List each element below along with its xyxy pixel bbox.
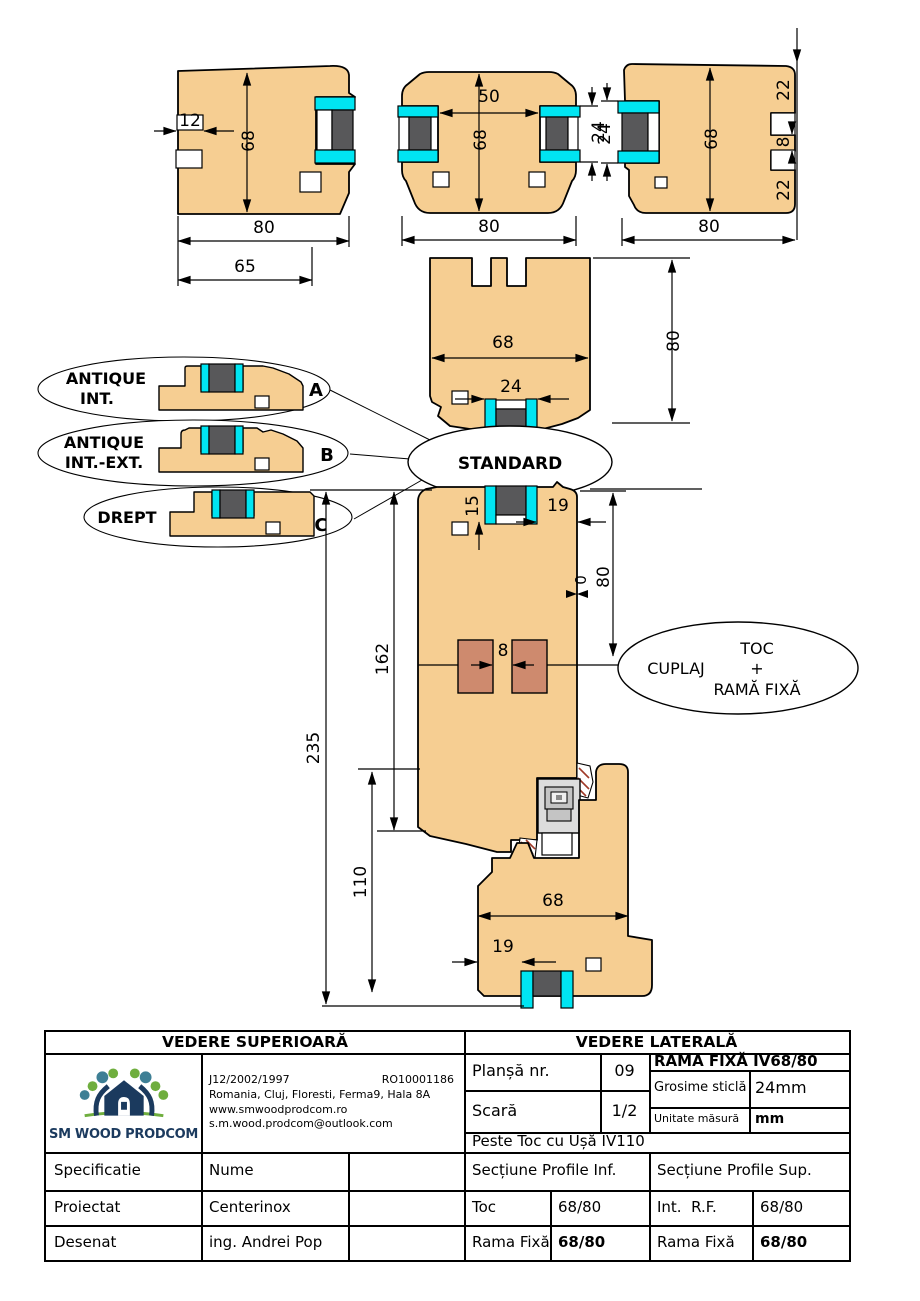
dim-19: 19: [547, 496, 569, 516]
label-antique: ANTIQUE: [66, 369, 146, 388]
dim-0: 0: [572, 575, 590, 585]
rama-fixa-inf-value: 68/80: [550, 1225, 649, 1260]
dim-80: 80: [594, 566, 614, 588]
label-rama-fixa: RAMĂ FIXĂ: [713, 680, 800, 699]
label-standard: STANDARD: [458, 454, 562, 474]
peste-toc-note: Peste Toc cu Ușă IV110: [464, 1132, 849, 1152]
unitate-value: mm: [749, 1107, 849, 1132]
dim-19: 19: [492, 937, 514, 957]
label-plus: +: [750, 659, 763, 678]
logo-graphic: [65, 1064, 183, 1126]
logo-wordmark: SM WOOD PRODCOM: [49, 1127, 198, 1142]
glass-pane: [533, 971, 561, 996]
blank-cell: [348, 1190, 464, 1225]
dim-80: 80: [698, 217, 720, 237]
scara-value: 1/2: [600, 1090, 649, 1132]
dowel-left: [458, 640, 493, 693]
label-antique: ANTIQUE: [64, 433, 144, 452]
company-info: J12/2002/1997 RO10001186 Romania, Cluj, …: [201, 1053, 464, 1152]
grosime-value: 24mm: [749, 1070, 849, 1107]
company-logo: SM WOOD PRODCOM: [46, 1053, 201, 1152]
dim-68: 68: [239, 130, 259, 152]
rama-fixa-sup-label: Rama Fixă: [649, 1225, 752, 1260]
dim-68: 68: [702, 128, 722, 150]
nume-label: Nume: [201, 1152, 348, 1190]
proiectat-label: Proiectat: [46, 1190, 201, 1225]
company-website: www.smwoodprodcom.ro: [209, 1103, 454, 1118]
toc-value: 68/80: [550, 1190, 649, 1225]
drawing-area: 12 68 80 65 50 68 24 8: [0, 0, 920, 1030]
dowel-right: [512, 640, 547, 693]
header-vedere-superioara: VEDERE SUPERIOARĂ: [46, 1032, 464, 1053]
company-registration: J12/2002/1997: [209, 1073, 290, 1088]
dim-24: 24: [500, 377, 522, 397]
dim-80: 80: [478, 217, 500, 237]
rama-fixa-sup-value: 68/80: [752, 1225, 849, 1260]
dim-8: 8: [774, 137, 794, 148]
dim-12: 12: [179, 111, 201, 131]
blank-cell: [348, 1152, 464, 1190]
label-int-ext: INT.-EXT.: [65, 453, 143, 472]
head-profile-section: 68 24 80: [430, 258, 690, 437]
unitate-label: Unitate măsură: [649, 1107, 749, 1132]
plansa-label: Planșă nr.: [464, 1053, 600, 1090]
toc-label: Toc: [464, 1190, 550, 1225]
glass-pane: [496, 486, 526, 515]
int-rf-label: Int. R.F.: [649, 1190, 752, 1225]
dim-50: 50: [478, 87, 500, 107]
dim-8: 8: [498, 641, 509, 661]
dim-15: 15: [463, 495, 483, 517]
spec-label: Specificatie: [46, 1152, 201, 1190]
variant-letter-a: A: [309, 380, 323, 401]
technical-drawing-sheet: 12 68 80 65 50 68 24 8: [0, 0, 920, 1301]
label-cuplaj: CUPLAJ: [647, 659, 704, 678]
glass-pane-right: [546, 117, 568, 150]
dim-22-bottom: 22: [774, 179, 794, 201]
label-toc: TOC: [739, 639, 774, 658]
proiectat-value: Centerinox: [201, 1190, 348, 1225]
glass-pane: [622, 113, 648, 151]
dim-110: 110: [351, 866, 371, 898]
variant-letter-b: B: [320, 445, 334, 466]
top-middle-profile-section: 50 68 24 80: [398, 72, 615, 246]
desenat-value: ing. Andrei Pop: [201, 1225, 348, 1260]
callout-antique-int-ext: ANTIQUE INT.-EXT. B: [38, 420, 348, 486]
desenat-label: Desenat: [46, 1225, 201, 1260]
product-title: RAMA FIXĂ IV68/80: [649, 1053, 849, 1070]
plansa-value: 09: [600, 1053, 649, 1090]
gasket-top: [315, 97, 355, 110]
callout-drept: DREPT C: [84, 487, 352, 547]
dim-68: 68: [492, 333, 514, 353]
top-right-profile-section: 24 68 22 8 22 80: [589, 28, 797, 246]
int-rf-value: 68/80: [752, 1190, 849, 1225]
company-cui: RO10001186: [382, 1073, 454, 1088]
scara-label: Scară: [464, 1090, 600, 1132]
dim-80: 80: [253, 218, 275, 238]
dim-235: 235: [304, 732, 324, 764]
blank-cell: [348, 1225, 464, 1260]
callout-cuplaj: CUPLAJ TOC + RAMĂ FIXĂ: [618, 622, 858, 714]
dim-162: 162: [373, 643, 393, 675]
header-vedere-laterala: VEDERE LATERALĂ: [464, 1032, 849, 1053]
company-address: Romania, Cluj, Floresti, Ferma9, Hala 8A: [209, 1088, 454, 1103]
dim-24: 24: [589, 121, 609, 143]
dim-65: 65: [234, 257, 256, 277]
label-drept: DREPT: [97, 508, 156, 527]
sectiune-sup-header: Secțiune Profile Sup.: [649, 1152, 849, 1190]
top-left-profile-section: 12 68 80 65: [154, 66, 355, 286]
glass-pane-left: [409, 117, 431, 150]
dim-22-top: 22: [774, 79, 794, 101]
company-email: s.m.wood.prodcom@outlook.com: [209, 1117, 454, 1132]
rama-fixa-inf-label: Rama Fixă: [464, 1225, 550, 1260]
glass-pane: [332, 110, 353, 150]
gasket-bottom: [315, 150, 355, 163]
dim-68: 68: [471, 129, 491, 151]
dim-80: 80: [664, 330, 684, 352]
callout-antique-int: ANTIQUE INT. A: [38, 357, 330, 421]
sectiune-inf-header: Secțiune Profile Inf.: [464, 1152, 649, 1190]
grosime-label: Grosime sticlă: [649, 1070, 749, 1107]
label-int: INT.: [80, 389, 114, 408]
dim-68: 68: [542, 891, 564, 911]
title-block: VEDERE SUPERIOARĂ VEDERE LATERALĂ SM WOO…: [44, 1030, 851, 1262]
